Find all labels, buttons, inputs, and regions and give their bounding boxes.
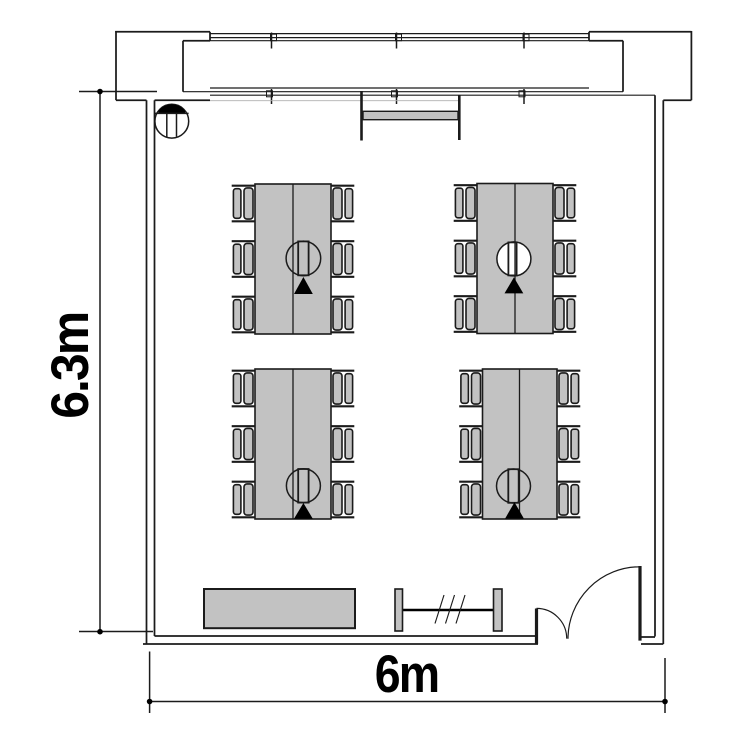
svg-text:6m: 6m xyxy=(375,644,438,704)
svg-text:6.3m: 6.3m xyxy=(40,313,100,419)
